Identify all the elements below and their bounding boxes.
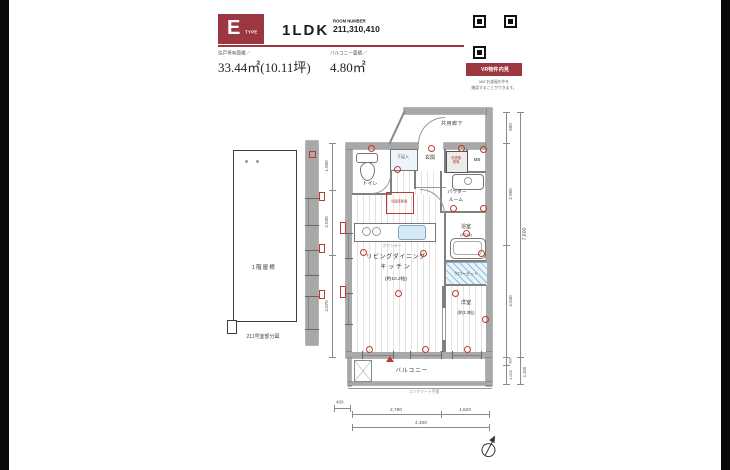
- type-letter: E: [227, 17, 240, 40]
- balcony-area-label: バルコニー面積／: [330, 51, 367, 56]
- dimension-tick: [352, 424, 353, 431]
- electrical-symbol-icon: [452, 290, 459, 297]
- window: [345, 293, 353, 325]
- room-label-washer: 洗濯機置場: [451, 156, 462, 164]
- room-label-powder2: ルーム: [449, 197, 463, 203]
- vr-button-label: VR物件内見: [481, 67, 509, 73]
- partition: [444, 260, 486, 262]
- fridge-label: 冷蔵庫置場: [391, 200, 408, 204]
- electrical-symbol-icon: [360, 249, 367, 256]
- dim-label-total: 1,300: [523, 367, 527, 378]
- wall: [404, 108, 486, 114]
- electrical-symbol-icon: [420, 250, 427, 257]
- floorplan-page: E TYPE 1LDK ROOM NUMBER 211,310,410 住戸専有…: [0, 0, 730, 470]
- dim-label: 1,000: [509, 370, 513, 380]
- electrical-symbol-icon: [422, 346, 429, 353]
- electrical-symbol-icon: [478, 250, 485, 257]
- sliding-door: [445, 308, 446, 340]
- dimension-line: [520, 112, 521, 358]
- counter-label: カウンター: [383, 244, 402, 248]
- dimension-tick: [352, 411, 353, 418]
- electrical-symbol-icon: [464, 346, 471, 353]
- dimension-tick: [503, 143, 510, 144]
- washbasin-bowl: [464, 177, 472, 185]
- type-word: TYPE: [245, 30, 258, 35]
- stove-burner-icon: [362, 227, 371, 236]
- room-label-ldk2: キッチン: [380, 264, 411, 271]
- dimension-line: [520, 358, 521, 385]
- electrical-symbol-icon: [395, 290, 402, 297]
- dim-label-total: 7,600: [523, 228, 528, 241]
- electrical-symbol-icon: [428, 145, 435, 152]
- dim-label-total: 4,400: [415, 420, 427, 426]
- handrail-label: コンクリート手摺: [409, 390, 439, 394]
- electrical-symbol-icon: [482, 316, 489, 323]
- dim-label-small: 400: [336, 400, 344, 405]
- roof-step: [227, 320, 237, 334]
- entrance-door-arc: [418, 117, 445, 144]
- dim-label: 600: [509, 123, 514, 131]
- north-arrow-icon: [474, 432, 504, 462]
- dimension-line: [506, 112, 507, 358]
- room-size-ldk: (約10.2帖): [385, 276, 407, 282]
- partition: [444, 262, 446, 286]
- dimension-tick: [517, 112, 524, 113]
- electrical-symbol-icon: [366, 346, 373, 353]
- qr-finder-icon: [473, 15, 486, 28]
- dim-label: 1,500: [325, 160, 330, 171]
- dimension-tick: [517, 384, 524, 385]
- layout-label: 1LDK: [282, 22, 329, 39]
- window: [345, 233, 353, 259]
- dimension-line: [332, 143, 333, 358]
- vr-caption-line1: 360°お部屋の中を: [479, 80, 510, 84]
- dimension-line: [352, 427, 490, 428]
- room-label-closet: クローゼット: [454, 272, 478, 277]
- exclusive-area-value: 33.44㎡(10.11坪): [218, 57, 311, 76]
- stove-burner-icon: [372, 227, 381, 236]
- dim-label: 4,070: [325, 300, 330, 311]
- vr-preview-button[interactable]: VR物件内見: [466, 63, 522, 76]
- window-tag: [309, 151, 316, 158]
- qr-code[interactable]: [470, 12, 520, 62]
- dimension-tick: [334, 405, 335, 412]
- electrical-symbol-icon: [458, 145, 465, 152]
- dim-label: 2,960: [509, 188, 514, 199]
- electrical-symbol-icon: [450, 205, 457, 212]
- room-label-bath: 浴室: [461, 224, 471, 230]
- right-edge-bar: [721, 0, 730, 470]
- room-label-shoebox: 下足入: [397, 155, 409, 160]
- partition: [442, 340, 446, 352]
- room-number-value: 211,310,410: [333, 25, 380, 35]
- dimension-line: [334, 408, 350, 409]
- wall-diagonal: [388, 110, 405, 144]
- dim-label: 2,030: [325, 216, 330, 227]
- window-tag: [319, 244, 325, 253]
- balcony-area-value: 4.80㎡: [330, 57, 366, 76]
- exclusive-area-label: 住戸専有面積／: [218, 51, 250, 56]
- sliding-door: [442, 308, 443, 340]
- qr-finder-icon: [473, 46, 486, 59]
- dimension-tick: [350, 405, 351, 412]
- dimension-tick: [503, 245, 510, 246]
- dimension-tick: [489, 411, 490, 418]
- hatch-panel: [354, 360, 372, 382]
- vr-caption-line2: 確認することができます。: [471, 86, 516, 90]
- dimension-tick: [503, 365, 510, 366]
- room-label-bedroom: 洋室: [461, 300, 471, 306]
- window-tag: [319, 192, 325, 201]
- room-size-bedroom: (約3.3帖): [457, 311, 474, 316]
- header-divider: [218, 45, 464, 47]
- roof-dot-icon: [245, 160, 248, 163]
- roof-outline: [233, 150, 297, 322]
- room-number-label: ROOM NUMBER: [333, 19, 366, 24]
- kitchen-sink: [398, 225, 426, 240]
- room-label-toilet: トイレ: [363, 181, 378, 187]
- ldk-floor: [352, 195, 440, 352]
- window: [305, 250, 319, 276]
- electrical-symbol-icon: [394, 166, 401, 173]
- window-tag: [340, 286, 346, 298]
- electrical-symbol-icon: [480, 146, 487, 153]
- dimension-tick: [503, 384, 510, 385]
- window: [305, 198, 319, 226]
- balcony-rail: [348, 382, 492, 385]
- dim-label: 300: [509, 358, 513, 364]
- electrical-symbol-icon: [368, 145, 375, 152]
- partition: [444, 284, 486, 286]
- left-edge-bar: [0, 0, 9, 470]
- electrical-symbol-icon: [480, 205, 487, 212]
- room-label-balcony: バルコニー: [396, 368, 429, 374]
- drain-marker-icon: [386, 356, 394, 362]
- dimension-tick: [329, 357, 336, 358]
- roof-dot-icon: [256, 160, 259, 163]
- dimension-tick: [329, 255, 336, 256]
- dimension-tick: [441, 411, 442, 418]
- dimension-line: [506, 358, 507, 385]
- partition: [440, 211, 486, 213]
- partition: [444, 213, 446, 262]
- electrical-symbol-icon: [463, 230, 470, 237]
- window: [305, 296, 319, 330]
- partition: [466, 171, 486, 173]
- window-tag: [319, 290, 325, 299]
- partial-diagram-caption: 211号室部分図: [247, 334, 280, 340]
- room-label-powder1: パウダー: [447, 189, 466, 195]
- type-badge: E TYPE: [218, 14, 264, 44]
- qr-finder-icon: [504, 15, 517, 28]
- room-label-ldk1: リビングダイニング: [366, 254, 425, 261]
- dimension-tick: [489, 424, 490, 431]
- dim-label: 2,780: [390, 407, 402, 413]
- dimension-line: [352, 414, 490, 415]
- partition: [442, 286, 446, 308]
- room-label-meter-box: MB: [474, 157, 481, 162]
- roof-label: 1階屋根: [252, 265, 276, 271]
- dim-label: 1,620: [459, 407, 471, 413]
- dim-label: 4,040: [509, 295, 514, 306]
- dimension-tick: [329, 143, 336, 144]
- room-label-entrance: 玄関: [425, 155, 435, 161]
- dimension-tick: [503, 112, 510, 113]
- window-tag: [340, 222, 346, 234]
- dimension-tick: [329, 190, 336, 191]
